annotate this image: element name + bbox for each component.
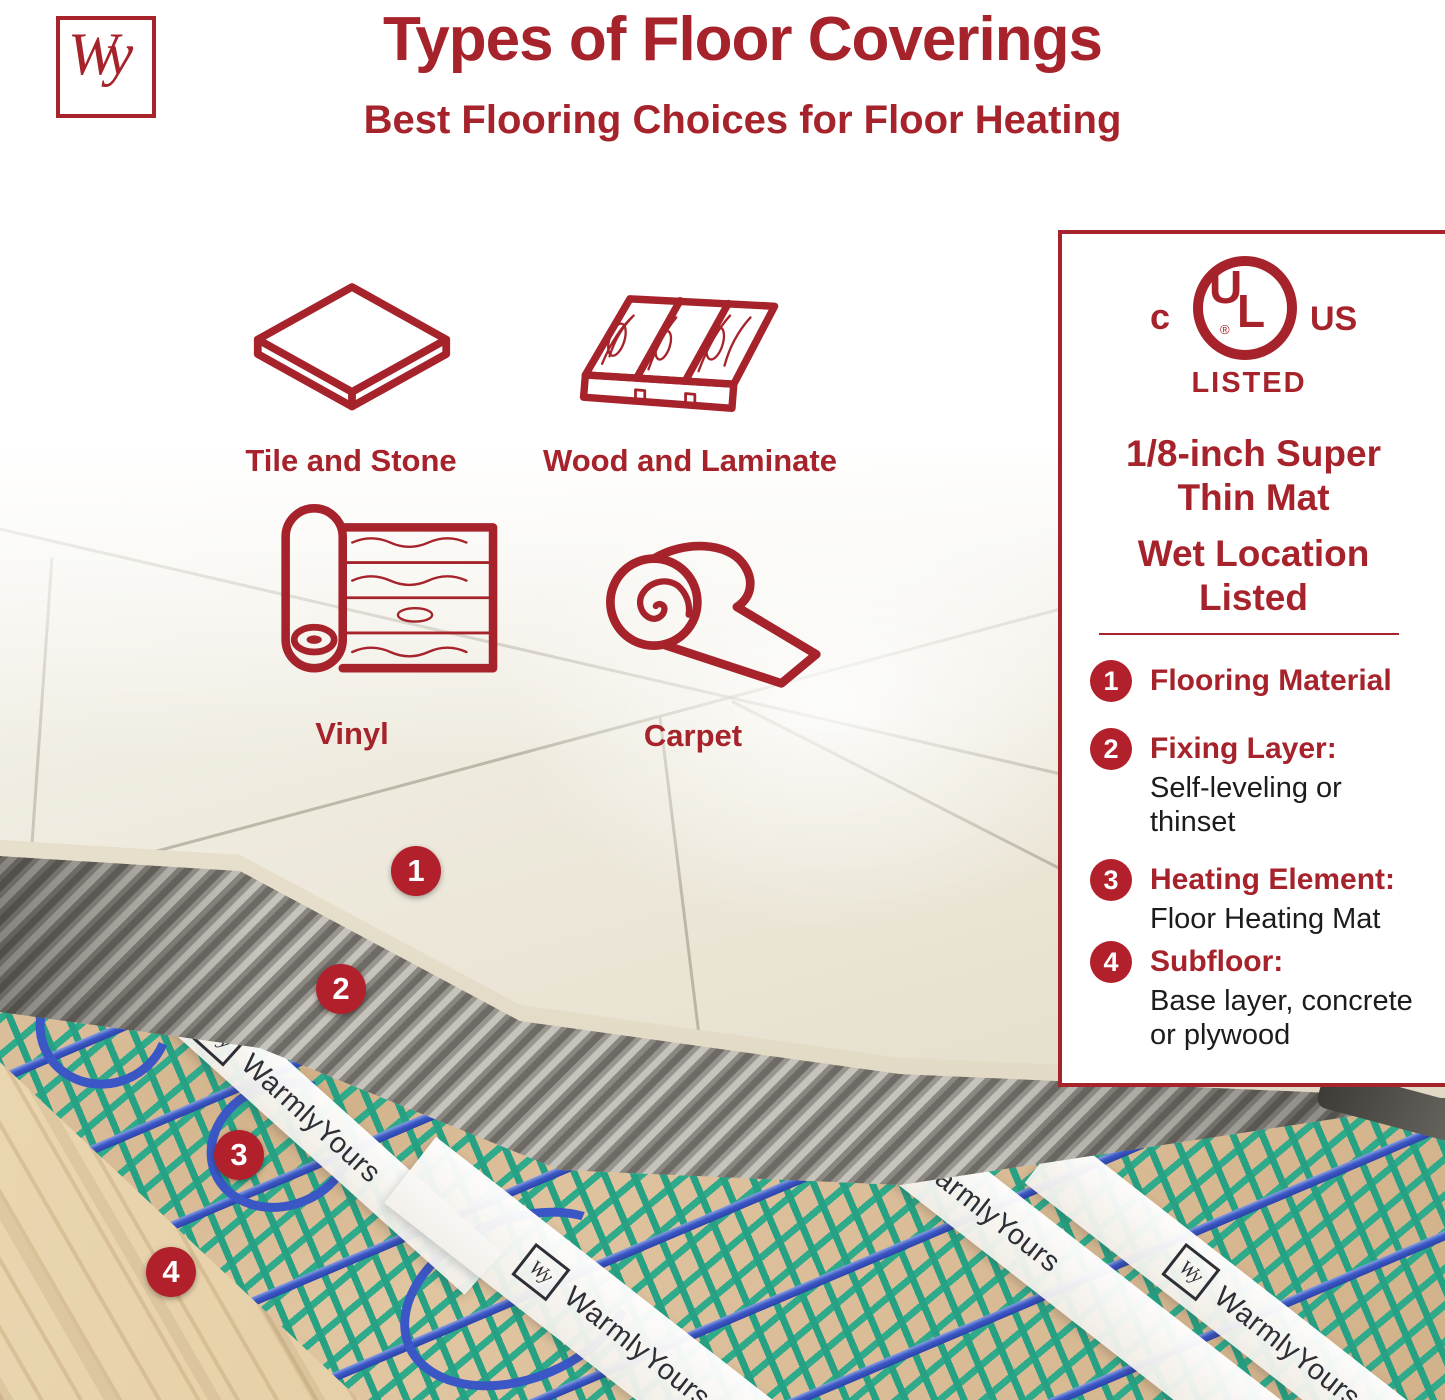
carpet-icon	[592, 512, 824, 700]
panel-divider	[1099, 633, 1399, 635]
legend-badge-2: 2	[1090, 728, 1132, 770]
ul-listed-label: LISTED	[1099, 367, 1399, 400]
flooring-label-carpet: Carpet	[593, 718, 793, 754]
legend-badge-1: 1	[1090, 660, 1132, 702]
legend-title-3: Heating Element:	[1150, 859, 1430, 901]
legend-item-2: 2 Fixing Layer: Self-leveling or thinset	[1090, 728, 1430, 840]
legend-desc-2: Self-leveling or thinset	[1150, 772, 1430, 840]
layer-badge-2: 2	[316, 964, 366, 1014]
ul-prefix-c: c	[1150, 296, 1170, 338]
legend-item-4: 4 Subfloor: Base layer, concrete or plyw…	[1090, 941, 1430, 1053]
flooring-label-tile: Tile and Stone	[231, 443, 471, 479]
tile-and-stone-icon	[250, 276, 454, 436]
legend-badge-3: 3	[1090, 859, 1132, 901]
layer-badge-4: 4	[146, 1247, 196, 1297]
warmlyyours-logo-icon: Wy	[1161, 1243, 1220, 1302]
page-subtitle: Best Flooring Choices for Floor Heating	[20, 98, 1445, 143]
layer-badge-1: 1	[391, 846, 441, 896]
wood-and-laminate-icon	[578, 290, 782, 432]
legend-badge-4: 4	[1090, 941, 1132, 983]
page-title: Types of Floor Coverings	[20, 4, 1445, 75]
legend-title-2: Fixing Layer:	[1150, 728, 1430, 770]
ul-suffix-us: US	[1310, 300, 1357, 339]
legend-item-1: 1 Flooring Material	[1090, 660, 1430, 704]
panel-headline-thin-mat: 1/8-inch Super Thin Mat	[1115, 432, 1392, 519]
tile-seam	[30, 557, 54, 856]
vinyl-icon	[272, 495, 520, 691]
legend-desc-4: Base layer, concrete or plywood	[1150, 985, 1430, 1053]
layer-badge-3: 3	[214, 1130, 264, 1180]
legend-item-3: 3 Heating Element: Floor Heating Mat	[1090, 859, 1430, 937]
legend-title-1: Flooring Material	[1150, 660, 1430, 702]
info-panel: U L ® c US LISTED 1/8-inch Super Thin Ma…	[1058, 230, 1445, 1087]
flooring-label-wood: Wood and Laminate	[530, 443, 850, 479]
flooring-label-vinyl: Vinyl	[252, 716, 452, 752]
legend-desc-3: Floor Heating Mat	[1150, 903, 1430, 937]
warmlyyours-logo-icon: Wy	[511, 1243, 570, 1302]
panel-headline-wet-location: Wet Location Listed	[1115, 532, 1392, 619]
legend-title-4: Subfloor:	[1150, 941, 1430, 983]
ul-registered-mark: ®	[1220, 322, 1230, 337]
ul-letter-l: L	[1237, 284, 1265, 338]
